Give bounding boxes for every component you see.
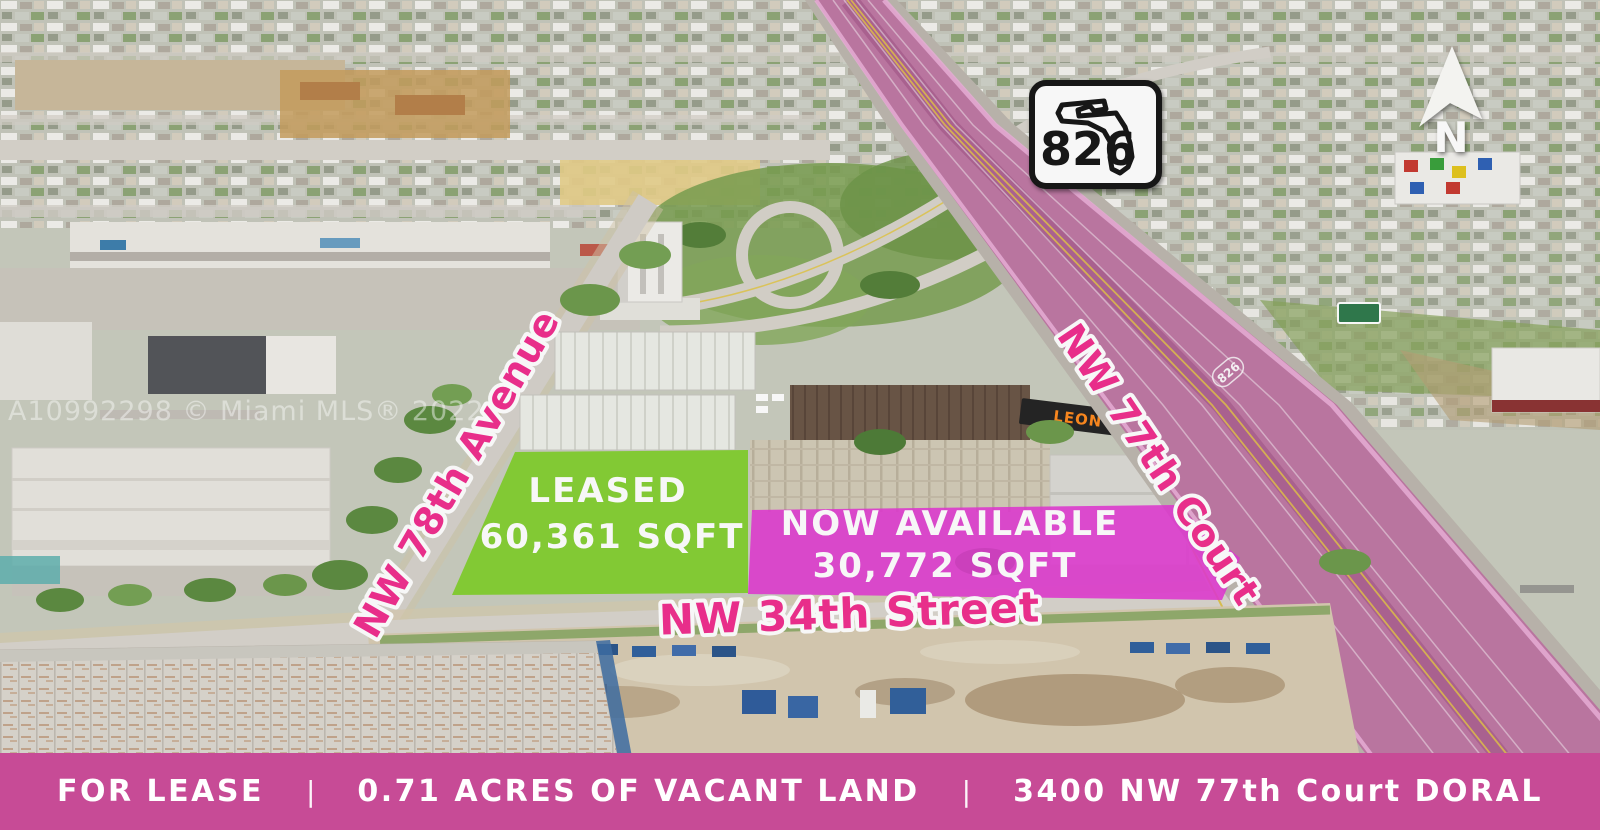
banner-address: 3400 NW 77th Court DORAL (1013, 774, 1543, 809)
banner-acreage: 0.71 ACRES OF VACANT LAND (357, 774, 919, 809)
banner-separator: | (306, 775, 315, 808)
banner-for-lease: FOR LEASE (57, 774, 264, 809)
aerial-photo: LEON 826 (0, 0, 1600, 830)
listing-flyer: LEON 826 (0, 0, 1600, 830)
photo-vignette (0, 0, 1600, 830)
bottom-banner: FOR LEASE | 0.71 ACRES OF VACANT LAND | … (0, 753, 1600, 830)
banner-separator: | (962, 775, 971, 808)
